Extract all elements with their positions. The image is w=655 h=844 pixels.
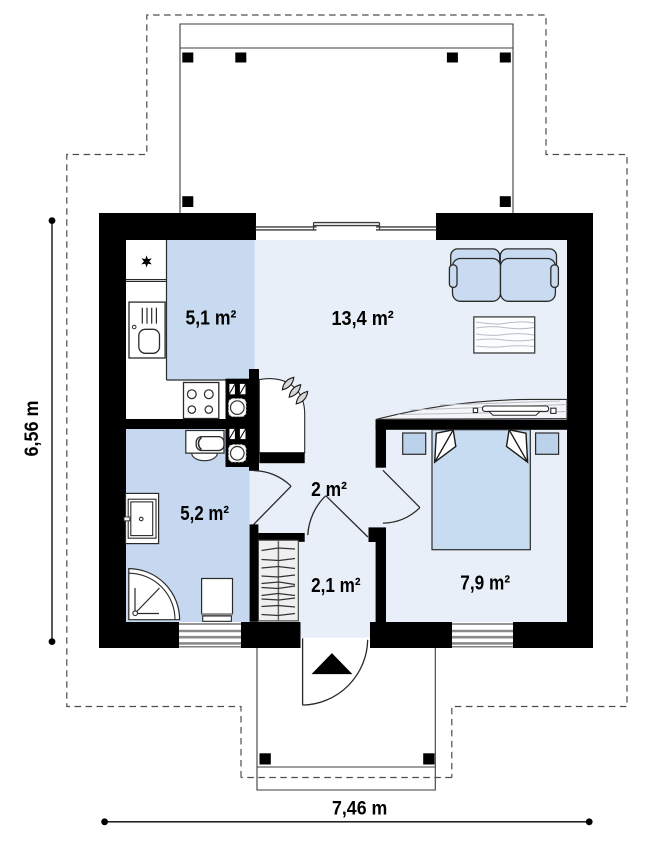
svg-text:5,1 m²: 5,1 m² bbox=[186, 306, 237, 329]
svg-text:7,9 m²: 7,9 m² bbox=[460, 572, 510, 595]
svg-text:6,56 m: 6,56 m bbox=[21, 401, 43, 457]
svg-text:5,2 m²: 5,2 m² bbox=[180, 502, 229, 525]
svg-text:13,4 m²: 13,4 m² bbox=[332, 307, 394, 330]
svg-text:2 m²: 2 m² bbox=[311, 478, 347, 501]
svg-text:7,46 m: 7,46 m bbox=[332, 797, 387, 819]
svg-text:2,1 m²: 2,1 m² bbox=[311, 574, 361, 597]
